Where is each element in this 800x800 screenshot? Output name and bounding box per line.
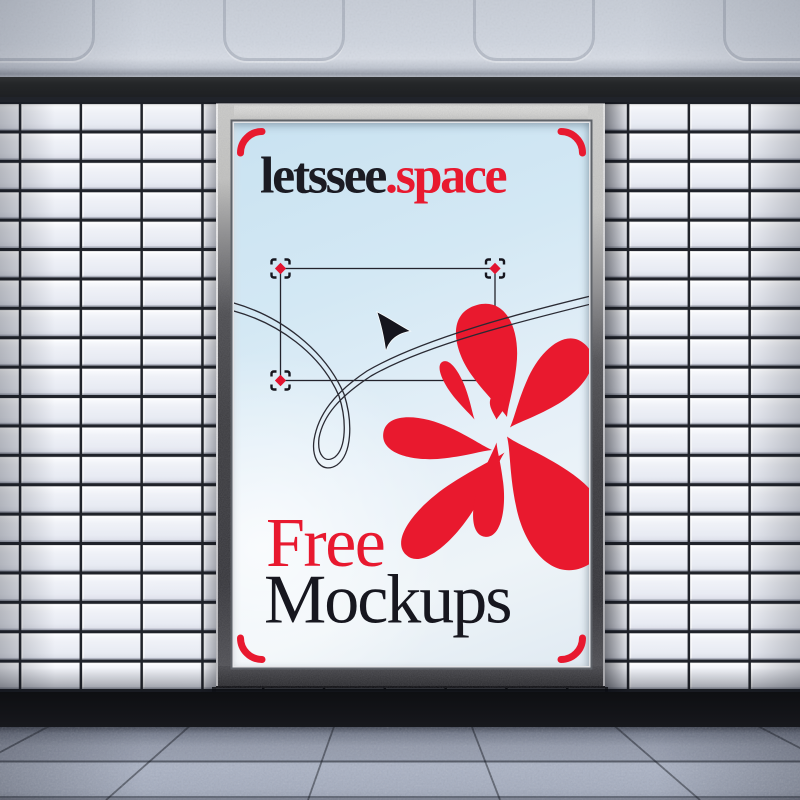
svg-text:Mockups: Mockups [264,561,511,638]
svg-text:letssee.space: letssee.space [260,147,507,204]
